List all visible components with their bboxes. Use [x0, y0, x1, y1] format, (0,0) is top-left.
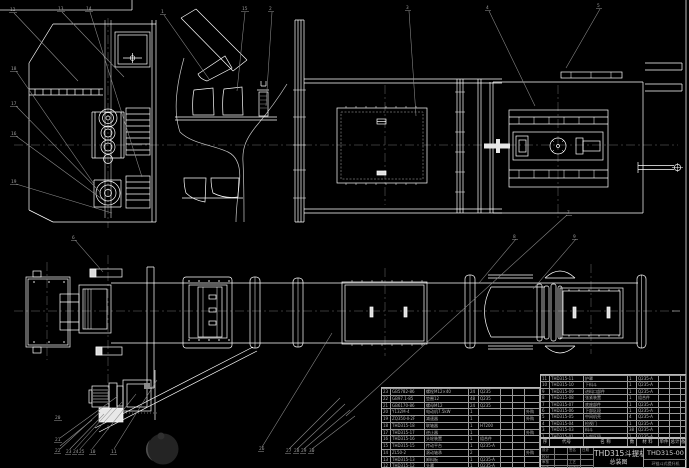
balloon: 23	[65, 449, 72, 455]
svg-text:24: 24	[73, 449, 79, 455]
bom-row: 14ZL50-2 滚动轴承2 外购	[382, 449, 539, 456]
bom-row: 16THD315-16 头轮装置1 组合件	[382, 435, 539, 442]
balloon: 13	[57, 6, 65, 12]
svg-text:30: 30	[309, 448, 315, 454]
svg-text:2: 2	[269, 6, 272, 12]
balloon: 9	[572, 234, 578, 240]
svg-text:7: 7	[567, 210, 570, 216]
bom-row: 22GB97.1-85 垫圈1248 Q235	[382, 395, 539, 402]
buckets	[175, 56, 277, 202]
bom-row: 13THD315-13 卸料板1 Q235-A	[382, 456, 539, 463]
watermark-logo	[146, 433, 179, 465]
drawing-number: THD315-00	[644, 448, 687, 459]
drive-unit	[89, 370, 158, 422]
svg-text:13: 13	[58, 6, 64, 12]
title-block: 设计签名日期 校对 审核工艺 批准标准化 THD315斗提机 总装图 THD31…	[540, 447, 686, 468]
balloon: 15	[241, 6, 249, 12]
balloon: 24	[72, 449, 79, 455]
balloon: 21	[54, 437, 62, 443]
balloon: 14	[85, 6, 93, 12]
drawing-title: THD315斗提机	[594, 448, 643, 459]
balloon: 26	[258, 446, 265, 452]
bom-header-cell: 备注	[681, 439, 686, 446]
bom-header-row: 序号 代号 名 称 数量 材 料 单件 总计 备注	[540, 438, 686, 447]
bom-row: 12THD315-12 头罩1 Q235-A	[382, 462, 539, 468]
svg-text:5: 5	[597, 3, 600, 9]
svg-text:25: 25	[79, 449, 85, 455]
bom-header-cell: 材 料	[637, 439, 659, 446]
balloon: 5	[596, 3, 602, 9]
svg-text:3: 3	[406, 5, 409, 11]
takeup-screw	[638, 162, 683, 173]
svg-text:1: 1	[161, 9, 164, 15]
bom-row: 18THD315-18 联轴器1 HT200	[382, 422, 539, 429]
balloon: 30	[308, 448, 315, 454]
plan-door-1	[183, 277, 232, 348]
balloon: 25	[78, 449, 85, 455]
bom-row: 23GB5782-86 螺栓M12×4024 Q235	[382, 388, 539, 395]
balloon: 10	[89, 449, 96, 455]
plan-end-cover	[26, 271, 70, 353]
head-wall-panels	[126, 20, 156, 222]
title-block-name: THD315斗提机 总装图	[594, 448, 644, 468]
cad-drawing-sheet: 12 13 14 1 15 2 3 4 5 18 17 16 19 6 8 9 …	[0, 0, 689, 468]
balloon: 8	[512, 234, 518, 240]
flange-walls	[293, 20, 306, 222]
bom-header-cell: 代号	[550, 439, 584, 446]
svg-text:11: 11	[111, 449, 117, 455]
svg-text:8: 8	[513, 234, 516, 240]
plan-panel	[342, 280, 427, 346]
boot-section	[484, 63, 683, 213]
leader-lines	[14, 9, 600, 449]
balloon: 3	[405, 5, 411, 11]
balloon: 20	[54, 415, 62, 421]
bom-table-right: 11THD315-11 护罩1 Q235-A 10THD315-10 下料斗1 …	[540, 374, 686, 438]
centerlines	[14, 18, 678, 430]
bom-header-cell: 名 称	[584, 439, 628, 446]
svg-text:26: 26	[259, 446, 265, 452]
svg-text:22: 22	[55, 448, 61, 454]
bom-header-cell: 单件	[659, 439, 670, 446]
drawing-subtitle: 总装图	[594, 459, 643, 467]
front-view	[29, 9, 683, 222]
drawing-org: 环链斗式提升机	[644, 459, 687, 467]
svg-text:27: 27	[286, 448, 292, 454]
bom-table-left: 23GB5782-86 螺栓M12×4024 Q235 22GB97.1-85 …	[381, 387, 540, 468]
svg-text:10: 10	[90, 449, 96, 455]
bom-row: 21GB6170-86 螺母M1224 Q235	[382, 402, 539, 409]
balloon: 18	[10, 66, 18, 72]
bom-row: 17THD315-17 逆止器1 外购	[382, 429, 539, 436]
svg-text:16: 16	[11, 131, 17, 137]
balloon: 6	[71, 235, 77, 241]
svg-text:12: 12	[10, 7, 16, 13]
svg-text:15: 15	[242, 6, 248, 12]
svg-text:6: 6	[72, 235, 75, 241]
svg-text:14: 14	[86, 6, 92, 12]
balloon: 4	[485, 5, 491, 11]
svg-text:29: 29	[301, 448, 307, 454]
middle-casing	[304, 79, 502, 213]
balloon: 11	[110, 449, 117, 455]
balloon: 22	[54, 448, 61, 454]
title-block-number: THD315-00 环链斗式提升机	[644, 448, 687, 468]
balloon: 16	[10, 131, 18, 137]
balloon: 28	[293, 448, 300, 454]
balloon: 1	[160, 9, 166, 15]
bom-header-cell: 总计	[670, 439, 681, 446]
svg-text:18: 18	[11, 66, 17, 72]
inclined-chute	[181, 9, 247, 71]
bom-row: 19ZQ350-Ⅱ-2F 减速器1 外购	[382, 415, 539, 422]
balloon: 27	[285, 448, 292, 454]
svg-text:21: 21	[55, 437, 61, 443]
bom-row: 15THD315-15 传动平台1 Q235-A	[382, 442, 539, 449]
bom-header-cell: 序号	[541, 439, 550, 446]
svg-text:20: 20	[55, 415, 61, 421]
head-window	[115, 32, 150, 67]
svg-text:4: 4	[486, 5, 489, 11]
balloon: 2	[268, 6, 274, 12]
balloon: 29	[300, 448, 307, 454]
svg-text:23: 23	[66, 449, 72, 455]
bom-row: 20Y132M-4 电动机7.5kW1 外购	[382, 408, 539, 415]
svg-text:9: 9	[573, 234, 576, 240]
plan-head	[60, 267, 154, 388]
svg-text:28: 28	[294, 448, 300, 454]
balloon: 17	[10, 101, 18, 107]
title-block-signatures: 设计签名日期 校对 审核工艺 批准标准化	[541, 448, 594, 468]
plan-flanges	[250, 275, 646, 348]
svg-text:17: 17	[11, 101, 17, 107]
plan-casing	[111, 283, 638, 343]
bom-header-cell: 数量	[628, 439, 637, 446]
svg-text:19: 19	[11, 179, 17, 185]
